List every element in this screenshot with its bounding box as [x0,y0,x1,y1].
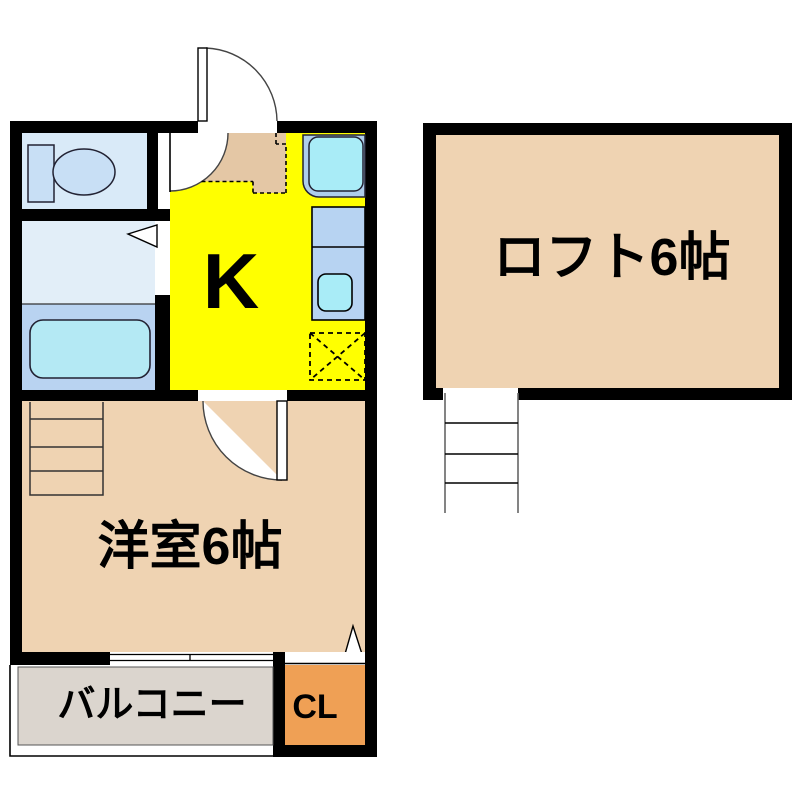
wall-kitchen-bottom-left [10,390,198,401]
first-floor: K 洋室6帖 バルコニー CL [10,48,377,757]
wall-kitchen-bottom-right [287,390,377,401]
loft-ladder-icon [445,393,518,513]
loft-wall-left [423,123,436,400]
wall-top-right [277,121,377,133]
bathtub-icon [30,320,150,378]
loft-wall-top [423,123,792,135]
wall-right [365,121,377,757]
wall-closet-left [273,652,285,745]
balcony-label: バルコニー [57,684,246,726]
kitchen-sink-icon [309,137,363,191]
floorplan-canvas: K 洋室6帖 バルコニー CL ロフト6帖 [0,0,800,800]
wall-bath-right [155,295,170,390]
floorplan-page: K 洋室6帖 バルコニー CL ロフト6帖 [0,0,800,800]
western-room-label: 洋室6帖 [98,518,283,576]
entrance-door-icon [198,48,277,133]
wall-bottom [273,745,377,757]
counter-sink-icon [318,274,352,311]
loft-wall-bottom-right [518,388,792,400]
loft-label: ロフト6帖 [494,229,731,287]
sliding-window-icon [110,652,273,665]
closet-label: CL [292,688,337,726]
loft-wall-right [779,123,792,400]
wall-top-left [10,121,198,133]
wall-under-toilet [10,209,170,221]
wall-room-bottom-left [10,652,110,665]
wall-toilet-right [147,133,158,209]
loft-floor: ロフト6帖 [423,123,792,513]
loft-wall-bottom-left [423,388,443,400]
kitchen-label: K [203,237,259,325]
